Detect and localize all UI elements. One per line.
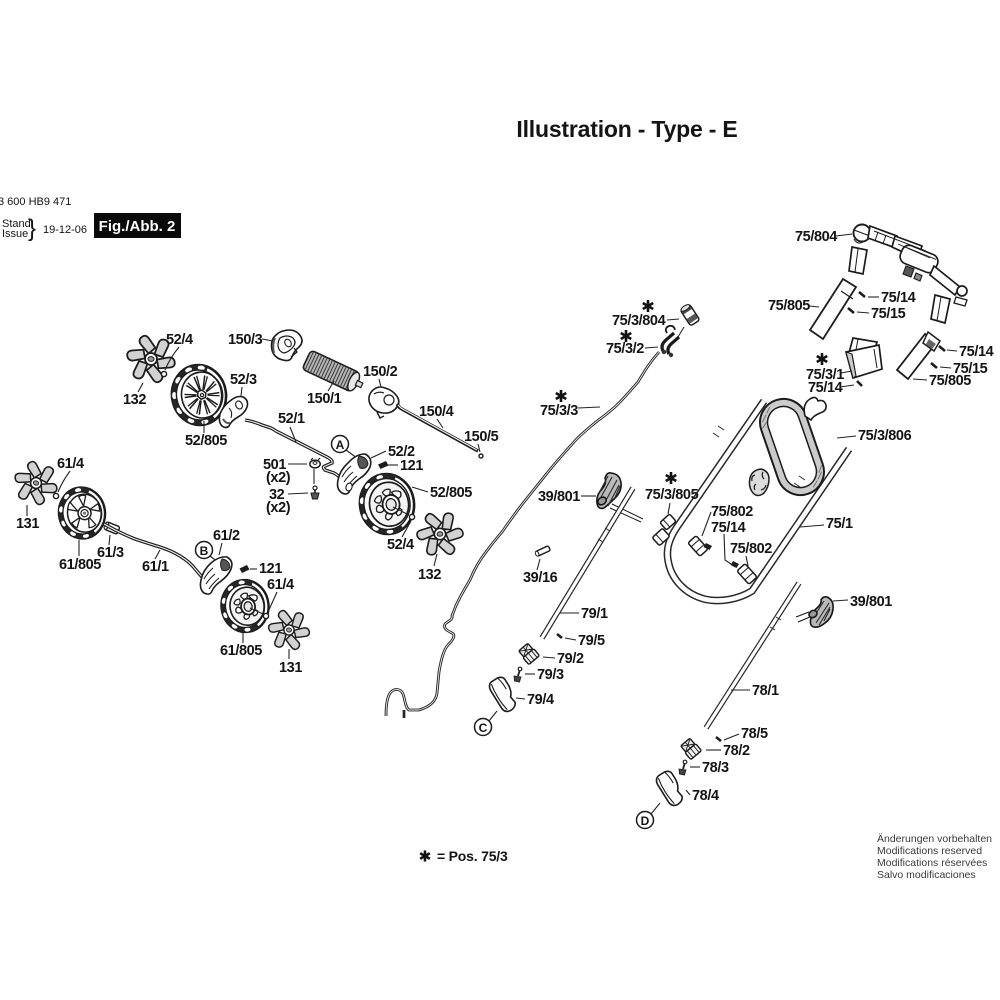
svg-text:75/14: 75/14 — [808, 380, 843, 396]
svg-text:Änderungen vorbehalten: Änderungen vorbehalten — [877, 833, 992, 845]
svg-text:131: 131 — [16, 516, 39, 532]
svg-text:61/805: 61/805 — [220, 643, 262, 659]
svg-text:79/1: 79/1 — [581, 606, 608, 622]
svg-text:150/5: 150/5 — [464, 429, 499, 445]
svg-text:61/4: 61/4 — [57, 456, 84, 472]
svg-text:150/1: 150/1 — [307, 391, 342, 407]
svg-text:Modifications réservées: Modifications réservées — [877, 857, 987, 869]
svg-text:79/2: 79/2 — [557, 651, 584, 667]
svg-text:52/4: 52/4 — [166, 332, 193, 348]
svg-text:}: } — [28, 215, 36, 242]
svg-text:61/4: 61/4 — [267, 577, 294, 593]
svg-text:75/3/3: 75/3/3 — [540, 403, 578, 419]
svg-text:150/3: 150/3 — [228, 332, 263, 348]
svg-text:75/805: 75/805 — [929, 373, 971, 389]
svg-text:78/5: 78/5 — [741, 726, 768, 742]
svg-text:39/801: 39/801 — [538, 489, 580, 505]
svg-text:78/1: 78/1 — [752, 683, 779, 699]
svg-text:C: C — [479, 721, 488, 735]
svg-text:121: 121 — [400, 458, 423, 474]
svg-text:121: 121 — [259, 561, 282, 577]
svg-text:75/3/805: 75/3/805 — [645, 487, 699, 503]
svg-text:19-12-06: 19-12-06 — [43, 224, 87, 236]
svg-text:79/3: 79/3 — [537, 667, 564, 683]
svg-text:52/1: 52/1 — [278, 411, 305, 427]
svg-text:78/4: 78/4 — [692, 788, 719, 804]
svg-text:Modifications reserved: Modifications reserved — [877, 845, 982, 857]
svg-text:75/802: 75/802 — [711, 504, 753, 520]
svg-text:75/3/804: 75/3/804 — [612, 313, 666, 329]
svg-text:75/1: 75/1 — [826, 516, 853, 532]
svg-text:75/14: 75/14 — [959, 344, 994, 360]
svg-text:75/3/2: 75/3/2 — [606, 341, 644, 357]
svg-text:75/14: 75/14 — [881, 290, 916, 306]
svg-text:75/804: 75/804 — [795, 229, 837, 245]
svg-text:= Pos. 75/3: = Pos. 75/3 — [437, 848, 508, 864]
svg-text:Fig./Abb. 2: Fig./Abb. 2 — [99, 218, 176, 235]
svg-text:75/802: 75/802 — [730, 541, 772, 557]
svg-text:132: 132 — [418, 567, 441, 583]
svg-text:78/3: 78/3 — [702, 760, 729, 776]
svg-text:52/805: 52/805 — [430, 485, 472, 501]
svg-text:75/15: 75/15 — [871, 306, 906, 322]
svg-text:150/4: 150/4 — [419, 404, 454, 420]
svg-text:79/4: 79/4 — [527, 692, 554, 708]
svg-text:B: B — [200, 544, 209, 558]
svg-text:78/2: 78/2 — [723, 743, 750, 759]
svg-text:75/14: 75/14 — [711, 520, 746, 536]
svg-text:61/1: 61/1 — [142, 559, 169, 575]
svg-text:61/3: 61/3 — [97, 545, 124, 561]
svg-text:(x2): (x2) — [266, 470, 291, 486]
svg-text:(x2): (x2) — [266, 500, 291, 516]
svg-text:52/805: 52/805 — [185, 433, 227, 449]
svg-text:132: 132 — [123, 392, 146, 408]
svg-text:131: 131 — [279, 660, 302, 676]
svg-text:61/805: 61/805 — [59, 557, 101, 573]
svg-text:79/5: 79/5 — [578, 633, 605, 649]
svg-text:150/2: 150/2 — [363, 364, 398, 380]
svg-text:52/3: 52/3 — [230, 372, 257, 388]
svg-text:75/3/806: 75/3/806 — [858, 428, 912, 444]
svg-text:Issue: Issue — [2, 228, 28, 240]
svg-text:75/805: 75/805 — [768, 298, 810, 314]
svg-text:3 600 HB9 471: 3 600 HB9 471 — [0, 196, 71, 208]
svg-text:A: A — [336, 438, 345, 452]
svg-text:D: D — [641, 814, 650, 828]
svg-text:61/2: 61/2 — [213, 528, 240, 544]
svg-text:39/801: 39/801 — [850, 594, 892, 610]
svg-text:Salvo modificaciones: Salvo modificaciones — [877, 869, 976, 881]
svg-text:39/16: 39/16 — [523, 570, 558, 586]
svg-text:Illustration - Type - E: Illustration - Type - E — [516, 116, 737, 142]
svg-text:52/4: 52/4 — [387, 537, 414, 553]
